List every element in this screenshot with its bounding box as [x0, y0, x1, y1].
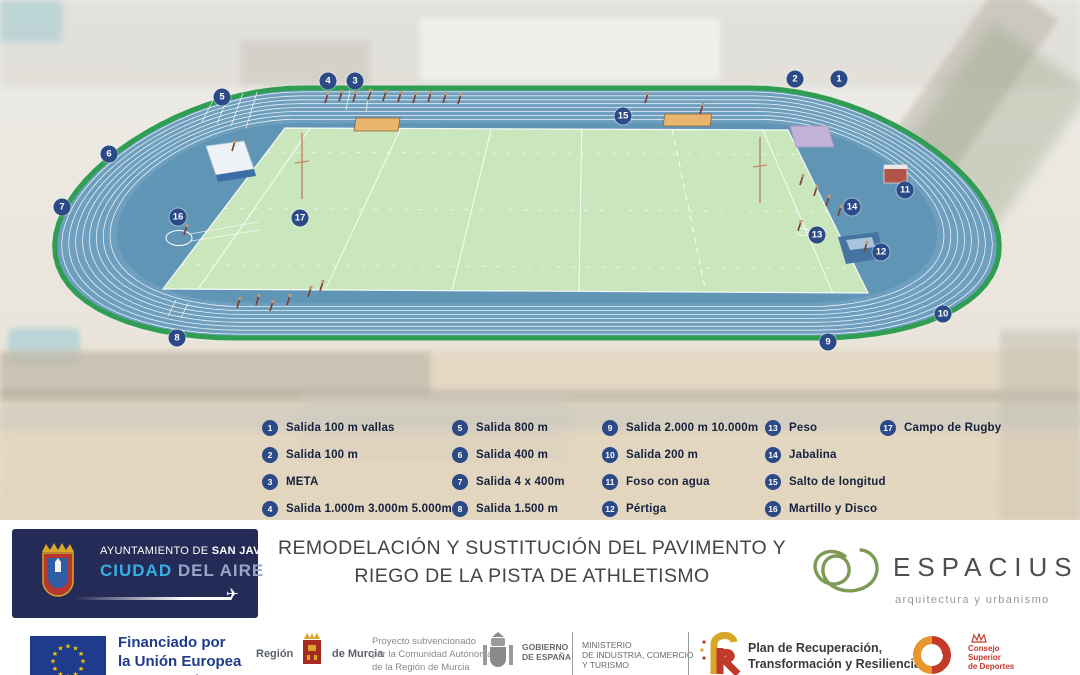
- svg-text:★: ★: [57, 645, 63, 653]
- track-marker-5: 5: [214, 89, 231, 106]
- track-marker-1: 1: [831, 71, 848, 88]
- spain-coat-of-arms-icon: [478, 631, 518, 673]
- legend-label: Salida 4 x 400m: [476, 476, 565, 488]
- csd-logo-icon: [902, 632, 964, 675]
- espacius-swirl-icon: [807, 542, 889, 604]
- eu-funding-text: Financiado por la Unión Europea: [118, 633, 241, 671]
- airplane-icon: ✈: [226, 585, 239, 603]
- plan-screenshot: 1234567891011121314151617 1Salida 100 m …: [0, 0, 1080, 675]
- subsidy-text: Proyecto subvencionado por la Comunidad …: [372, 635, 492, 674]
- svg-text:★: ★: [78, 650, 84, 658]
- track-marker-15: 15: [615, 108, 632, 125]
- legend-badge-6: 6: [452, 447, 468, 463]
- san-javier-text: AYUNTAMIENTO DE SAN JAVIER CIUDAD DEL AI…: [100, 545, 252, 581]
- ministerio-text: MINISTERIO DE INDUSTRIA, COMERCIO Y TURI…: [582, 640, 693, 670]
- eu-flag-icon: ★★★★★★★★★★★★: [30, 636, 106, 675]
- legend-badge-13: 13: [765, 420, 781, 436]
- legend-label: Salida 200 m: [626, 449, 698, 461]
- legend-badge-4: 4: [262, 501, 278, 517]
- legend-badge-16: 16: [765, 501, 781, 517]
- track-marker-14: 14: [844, 199, 861, 216]
- legend-item-8: 8Salida 1.500 m: [452, 495, 565, 522]
- legend-label: Salida 400 m: [476, 449, 548, 461]
- project-title: REMODELACIÓN Y SUSTITUCIÓN DEL PAVIMENTO…: [262, 534, 802, 590]
- legend-item-16: 16Martillo y Disco: [765, 495, 886, 522]
- project-title-line2: RIEGO DE LA PISTA DE ATHLETISMO: [262, 562, 802, 590]
- svg-text:★: ★: [72, 670, 78, 675]
- divider: [688, 632, 689, 675]
- legend-label: Salida 2.000 m 10.000m: [626, 422, 758, 434]
- credits-strip: ★★★★★★★★★★★★ Financiado por la Unión Eur…: [0, 628, 1080, 675]
- legend-badge-11: 11: [602, 474, 618, 490]
- legend-badge-15: 15: [765, 474, 781, 490]
- espacius-name: ESPACIUS: [893, 552, 1079, 583]
- svg-text:★: ★: [78, 665, 84, 673]
- san-javier-line1: AYUNTAMIENTO DE SAN JAVIER: [100, 545, 252, 557]
- legend-label: Salida 1.500 m: [476, 503, 558, 515]
- legend-item-17: 17Campo de Rugby: [880, 414, 1001, 441]
- legend-item-10: 10Salida 200 m: [602, 441, 758, 468]
- legend-item-14: 14Jabalina: [765, 441, 886, 468]
- legend-item-15: 15Salto de longitud: [765, 468, 886, 495]
- legend-label: Salida 800 m: [476, 422, 548, 434]
- legend-badge-7: 7: [452, 474, 468, 490]
- legend-item-2: 2Salida 100 m: [262, 441, 452, 468]
- legend: 1Salida 100 m vallas2Salida 100 m3META4S…: [0, 414, 1080, 522]
- project-title-line1: REMODELACIÓN Y SUSTITUCIÓN DEL PAVIMENTO…: [262, 534, 802, 562]
- track-marker-9: 9: [820, 334, 837, 351]
- svg-text:★: ★: [57, 670, 63, 675]
- legend-label: Jabalina: [789, 449, 837, 461]
- track-marker-4: 4: [320, 73, 337, 90]
- legend-item-11: 11Foso con agua: [602, 468, 758, 495]
- svg-text:★: ★: [80, 658, 86, 666]
- legend-label: Martillo y Disco: [789, 503, 877, 515]
- legend-column: 13Peso14Jabalina15Salto de longitud16Mar…: [765, 414, 886, 522]
- svg-text:★: ★: [50, 658, 56, 666]
- legend-badge-14: 14: [765, 447, 781, 463]
- legend-item-3: 3META: [262, 468, 452, 495]
- legend-column: 5Salida 800 m6Salida 400 m7Salida 4 x 40…: [452, 414, 565, 522]
- legend-column: 1Salida 100 m vallas2Salida 100 m3META4S…: [262, 414, 452, 522]
- legend-badge-8: 8: [452, 501, 468, 517]
- svg-text:★: ★: [65, 643, 71, 651]
- san-javier-logo: AYUNTAMIENTO DE SAN JAVIER CIUDAD DEL AI…: [12, 529, 258, 618]
- legend-label: Peso: [789, 422, 817, 434]
- legend-badge-12: 12: [602, 501, 618, 517]
- legend-item-4: 4Salida 1.000m 3.000m 5.000m: [262, 495, 452, 522]
- long-jump-pit: [354, 118, 400, 131]
- espacius-logo: ESPACIUS arquitectura y urbanismo: [805, 528, 1073, 620]
- track-marker-12: 12: [873, 244, 890, 261]
- murcia-label-left: Región: [256, 648, 293, 660]
- legend-badge-10: 10: [602, 447, 618, 463]
- legend-item-6: 6Salida 400 m: [452, 441, 565, 468]
- legend-label: Salto de longitud: [789, 476, 886, 488]
- water-jump-rail: [884, 165, 907, 169]
- plane-trail: [74, 597, 232, 600]
- long-jump-pit: [663, 114, 712, 126]
- landing-mat: [790, 126, 834, 147]
- rugby-field: [163, 128, 868, 293]
- track-marker-13: 13: [809, 227, 826, 244]
- legend-badge-5: 5: [452, 420, 468, 436]
- san-javier-line2: CIUDAD DEL AIRE: [100, 561, 252, 581]
- csd-text: Consejo Superior de Deportes: [968, 644, 1014, 671]
- espacius-tagline: arquitectura y urbanismo: [895, 594, 1050, 606]
- legend-label: Campo de Rugby: [904, 422, 1001, 434]
- plan-recuperacion-text: Plan de Recuperación, Transformación y R…: [748, 640, 921, 672]
- track-marker-8: 8: [169, 330, 186, 347]
- svg-text:★: ★: [52, 665, 58, 673]
- legend-badge-1: 1: [262, 420, 278, 436]
- track-marker-7: 7: [54, 199, 71, 216]
- legend-column: 9Salida 2.000 m 10.000m10Salida 200 m11F…: [602, 414, 758, 522]
- track-marker-3: 3: [347, 73, 364, 90]
- legend-label: Salida 100 m vallas: [286, 422, 395, 434]
- track-marker-6: 6: [101, 146, 118, 163]
- divider: [572, 632, 573, 675]
- track-marker-11: 11: [897, 182, 914, 199]
- legend-item-1: 1Salida 100 m vallas: [262, 414, 452, 441]
- track-marker-17: 17: [292, 210, 309, 227]
- prtr-logo-icon: [698, 630, 746, 675]
- legend-badge-9: 9: [602, 420, 618, 436]
- legend-item-13: 13Peso: [765, 414, 886, 441]
- legend-item-9: 9Salida 2.000 m 10.000m: [602, 414, 758, 441]
- legend-badge-3: 3: [262, 474, 278, 490]
- legend-label: META: [286, 476, 319, 488]
- murcia-crest-icon: [298, 631, 326, 675]
- legend-label: Pértiga: [626, 503, 666, 515]
- gobierno-espana-text: GOBIERNO DE ESPAÑA: [522, 642, 571, 662]
- legend-label: Salida 100 m: [286, 449, 358, 461]
- track-marker-2: 2: [787, 71, 804, 88]
- legend-item-5: 5Salida 800 m: [452, 414, 565, 441]
- legend-item-12: 12Pértiga: [602, 495, 758, 522]
- legend-label: Foso con agua: [626, 476, 710, 488]
- track-marker-10: 10: [935, 306, 952, 323]
- legend-badge-2: 2: [262, 447, 278, 463]
- track-marker-16: 16: [170, 209, 187, 226]
- legend-item-7: 7Salida 4 x 400m: [452, 468, 565, 495]
- legend-badge-17: 17: [880, 420, 896, 436]
- legend-label: Salida 1.000m 3.000m 5.000m: [286, 503, 452, 515]
- csd-crown-icon: [970, 633, 988, 643]
- legend-column: 17Campo de Rugby: [880, 414, 1001, 441]
